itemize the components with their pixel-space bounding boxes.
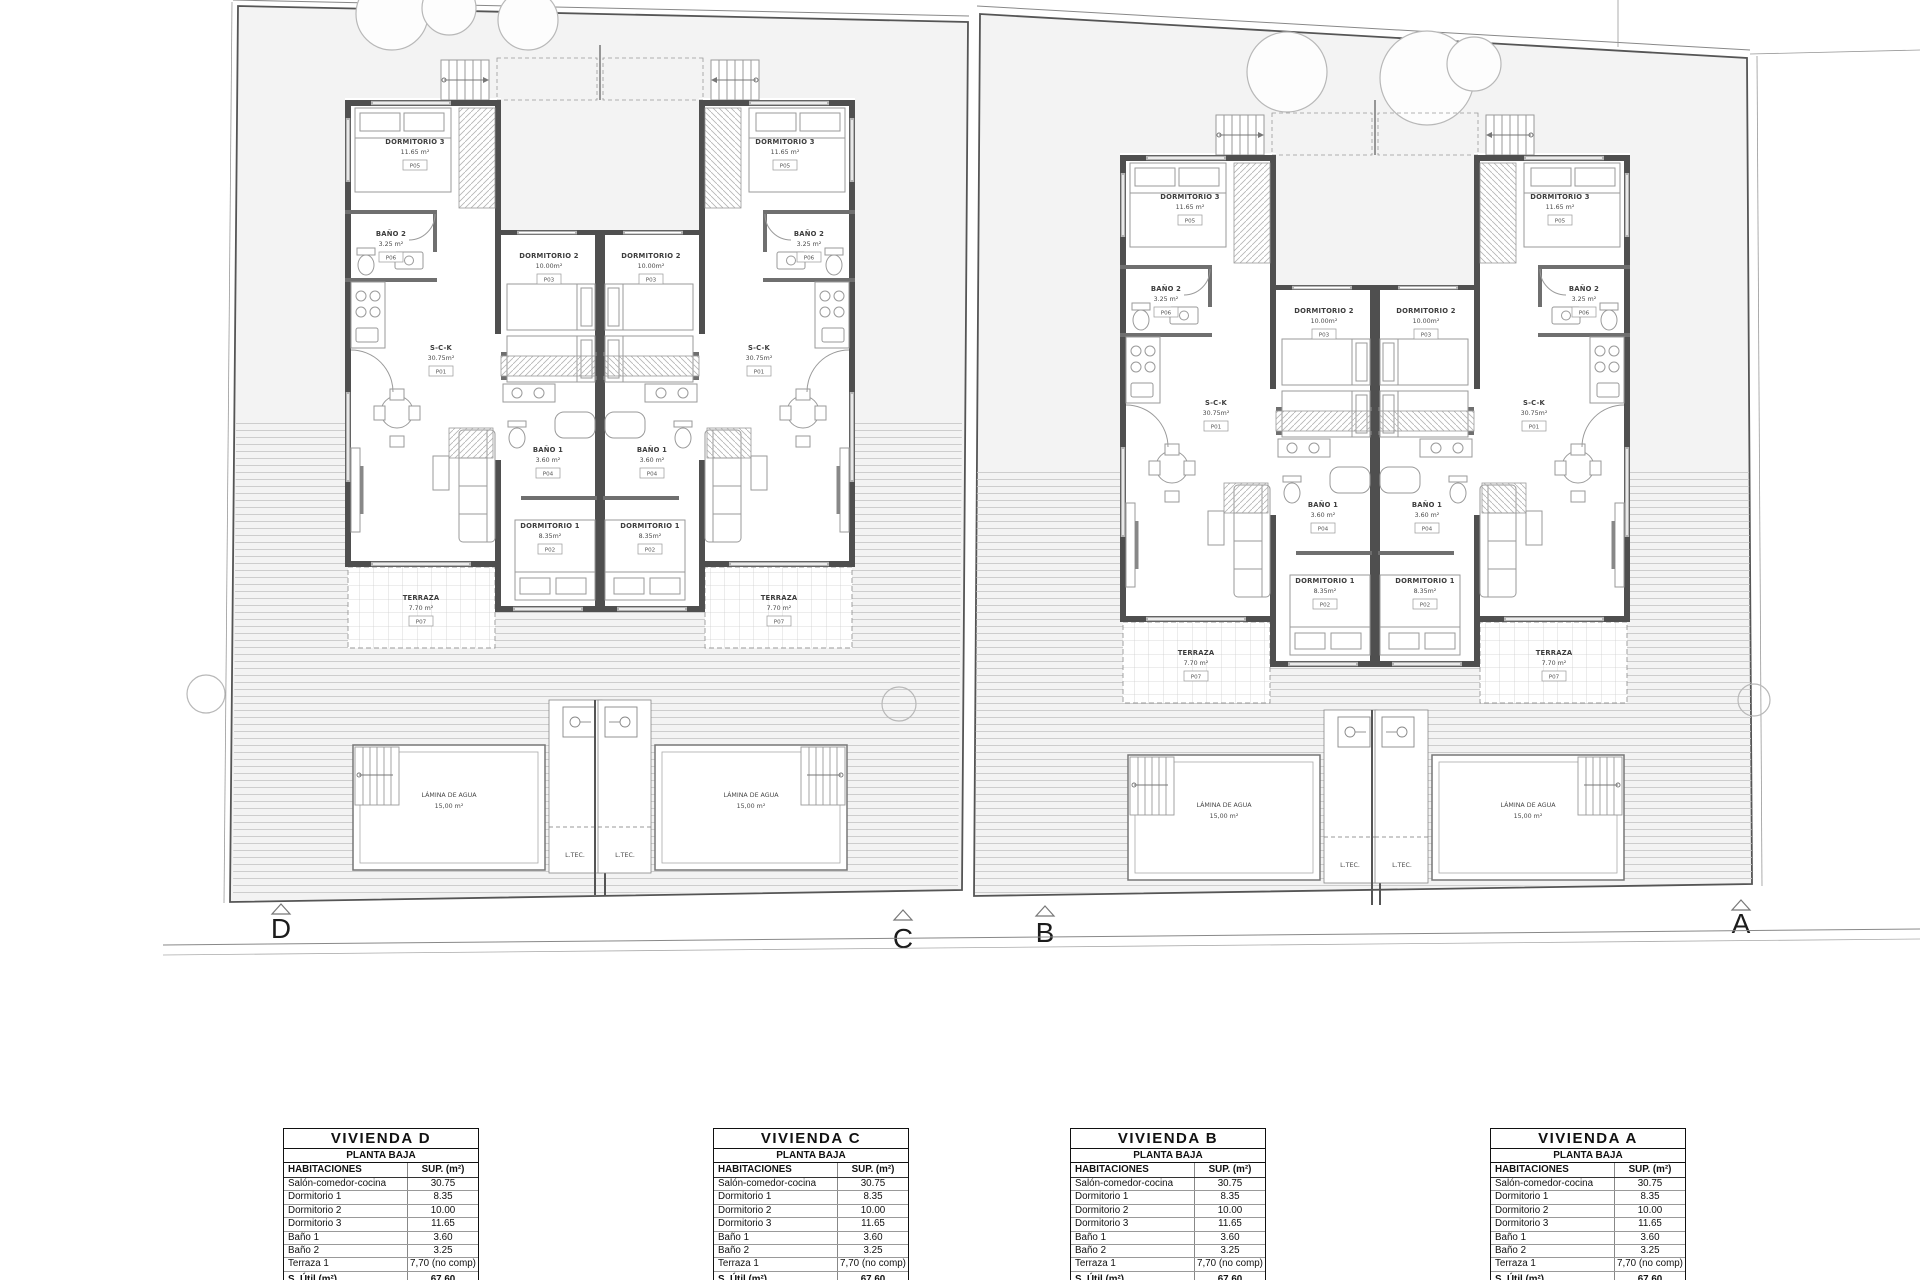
table-subtitle: PLANTA BAJA [1071, 1149, 1265, 1163]
table-title: VIVIENDA D [284, 1129, 478, 1149]
col-header-rooms: HABITACIONES [1491, 1163, 1614, 1177]
table-subtitle: PLANTA BAJA [1491, 1149, 1685, 1163]
vivienda-table-d: VIVIENDA D PLANTA BAJA HABITACIONES SUP.… [283, 1128, 479, 1280]
room-label: 7.70 m² [1184, 660, 1209, 667]
room-area-cell: 8.35 [1614, 1191, 1685, 1203]
total-label: S. Útil (m²) [284, 1272, 407, 1280]
room-label: 11.65 m² [401, 149, 430, 156]
table-row: Baño 13.60 [1491, 1232, 1685, 1245]
room-name-cell: Dormitorio 2 [1491, 1205, 1614, 1217]
room-label: P05 [1555, 219, 1566, 225]
table-subtitle: PLANTA BAJA [714, 1149, 908, 1163]
room-name-cell: Salón-comedor-cocina [714, 1178, 837, 1190]
room-label: P02 [545, 548, 556, 554]
room-area-cell: 30.75 [1614, 1178, 1685, 1190]
room-label: LÁMINA DE AGUA [421, 790, 477, 799]
table-row: Salón-comedor-cocina30.75 [1491, 1178, 1685, 1191]
table-row: Dormitorio 311.65 [714, 1218, 908, 1231]
room-label: P02 [645, 548, 656, 554]
room-area-cell: 3.60 [407, 1232, 478, 1244]
table-total-row: S. Útil (m²) 67.60 [284, 1272, 478, 1280]
section-marker-d: D [271, 913, 291, 944]
room-area-cell: 11.65 [1614, 1218, 1685, 1230]
table-row: Dormitorio 311.65 [1071, 1218, 1265, 1231]
room-name-cell: Baño 1 [1491, 1232, 1614, 1244]
room-name-cell: Dormitorio 1 [1071, 1191, 1194, 1203]
tree-icon [1247, 32, 1327, 112]
room-label: L.TEC. [1340, 862, 1360, 869]
table-row: Baño 23.25 [1071, 1245, 1265, 1258]
table-subtitle: PLANTA BAJA [284, 1149, 478, 1163]
total-value: 67.60 [1614, 1272, 1685, 1280]
table-header: HABITACIONES SUP. (m²) [1491, 1163, 1685, 1178]
room-label: P01 [1211, 425, 1222, 431]
room-label: P06 [1161, 311, 1172, 317]
room-label: 15,00 m² [435, 803, 464, 810]
room-label: 3.25 m² [1154, 296, 1179, 303]
room-area-cell: 3.25 [1194, 1245, 1265, 1257]
room-name-cell: Dormitorio 3 [1491, 1218, 1614, 1230]
room-name-cell: Dormitorio 3 [714, 1218, 837, 1230]
room-area-cell: 11.65 [1194, 1218, 1265, 1230]
room-label: LÁMINA DE AGUA [1500, 800, 1556, 809]
room-name-cell: Salón-comedor-cocina [1071, 1178, 1194, 1190]
room-name-cell: Baño 2 [1491, 1245, 1614, 1257]
table-rows: Salón-comedor-cocina30.75Dormitorio 18.3… [1491, 1178, 1685, 1272]
total-value: 67.60 [407, 1272, 478, 1280]
room-area-cell: 10.00 [1614, 1205, 1685, 1217]
room-label: 3.60 m² [1415, 512, 1440, 519]
room-label: BAÑO 2 [794, 229, 824, 238]
room-label: P05 [780, 164, 791, 170]
table-total-row: S. Útil (m²) 67.60 [1071, 1272, 1265, 1280]
room-label: BAÑO 2 [376, 229, 406, 238]
room-label: 3.60 m² [1311, 512, 1336, 519]
room-name-cell: Dormitorio 3 [1071, 1218, 1194, 1230]
table-row: Baño 23.25 [284, 1245, 478, 1258]
room-label: BAÑO 1 [637, 445, 667, 454]
room-label: P03 [1421, 333, 1432, 339]
room-label: 11.65 m² [771, 149, 800, 156]
table-row: Dormitorio 18.35 [284, 1191, 478, 1204]
room-label: P01 [436, 370, 447, 376]
col-header-rooms: HABITACIONES [1071, 1163, 1194, 1177]
room-label: P06 [804, 256, 815, 262]
room-label: P05 [410, 164, 421, 170]
room-name-cell: Baño 2 [284, 1245, 407, 1257]
room-label: P02 [1420, 603, 1431, 609]
room-label: 7.70 m² [409, 605, 434, 612]
col-header-rooms: HABITACIONES [284, 1163, 407, 1177]
room-label: 10.00m² [638, 263, 665, 270]
room-label: 7.70 m² [1542, 660, 1567, 667]
room-name-cell: Dormitorio 3 [284, 1218, 407, 1230]
room-label: DORMITORIO 1 [1295, 577, 1354, 585]
room-area-cell: 10.00 [1194, 1205, 1265, 1217]
room-label: P05 [1185, 219, 1196, 225]
room-label: S-C-K [430, 344, 452, 352]
room-label: 30.75m² [428, 355, 455, 362]
room-label: TERRAZA [761, 594, 798, 602]
room-label: DORMITORIO 2 [1294, 307, 1353, 315]
room-name-cell: Baño 1 [284, 1232, 407, 1244]
room-name-cell: Terraza 1 [1071, 1258, 1194, 1270]
table-title: VIVIENDA A [1491, 1129, 1685, 1149]
room-label: L.TEC. [1392, 862, 1412, 869]
room-area-cell: 30.75 [1194, 1178, 1265, 1190]
room-name-cell: Baño 2 [1071, 1245, 1194, 1257]
table-row: Dormitorio 210.00 [1071, 1205, 1265, 1218]
room-label: P04 [1422, 527, 1433, 533]
total-label: S. Útil (m²) [714, 1272, 837, 1280]
table-row: Terraza 17,70 (no comp) [714, 1258, 908, 1271]
room-name-cell: Terraza 1 [714, 1258, 837, 1270]
room-area-cell: 3.25 [407, 1245, 478, 1257]
room-label: L.TEC. [565, 852, 585, 859]
table-total-row: S. Útil (m²) 67.60 [714, 1272, 908, 1280]
total-label: S. Útil (m²) [1071, 1272, 1194, 1280]
table-row: Dormitorio 311.65 [1491, 1218, 1685, 1231]
room-label: S-C-K [1523, 399, 1545, 407]
room-area-cell: 3.25 [837, 1245, 908, 1257]
table-row: Salón-comedor-cocina30.75 [1071, 1178, 1265, 1191]
vivienda-table-a: VIVIENDA A PLANTA BAJA HABITACIONES SUP.… [1490, 1128, 1686, 1280]
room-label: P04 [543, 472, 554, 478]
table-rows: Salón-comedor-cocina30.75Dormitorio 18.3… [1071, 1178, 1265, 1272]
room-label: 15,00 m² [737, 803, 766, 810]
room-label: 8.35m² [539, 533, 562, 540]
room-label: BAÑO 1 [1308, 500, 1338, 509]
room-label: P01 [754, 370, 765, 376]
room-area-cell: 7,70 (no comp) [1194, 1258, 1265, 1270]
room-label: BAÑO 2 [1569, 284, 1599, 293]
room-area-cell: 10.00 [407, 1205, 478, 1217]
room-label: P04 [1318, 527, 1329, 533]
table-title: VIVIENDA B [1071, 1129, 1265, 1149]
table-rows: Salón-comedor-cocina30.75Dormitorio 18.3… [284, 1178, 478, 1272]
room-label: DORMITORIO 2 [621, 252, 680, 260]
room-name-cell: Salón-comedor-cocina [284, 1178, 407, 1190]
room-label: TERRAZA [403, 594, 440, 602]
vivienda-table-b: VIVIENDA B PLANTA BAJA HABITACIONES SUP.… [1070, 1128, 1266, 1280]
room-label: L.TEC. [615, 852, 635, 859]
total-value: 67.60 [1194, 1272, 1265, 1280]
room-name-cell: Terraza 1 [284, 1258, 407, 1270]
table-total-row: S. Útil (m²) 67.60 [1491, 1272, 1685, 1280]
room-name-cell: Dormitorio 2 [1071, 1205, 1194, 1217]
room-label: BAÑO 1 [533, 445, 563, 454]
room-label: BAÑO 1 [1412, 500, 1442, 509]
table-row: Dormitorio 18.35 [1491, 1191, 1685, 1204]
table-row: Baño 13.60 [714, 1232, 908, 1245]
table-row: Baño 23.25 [1491, 1245, 1685, 1258]
room-name-cell: Salón-comedor-cocina [1491, 1178, 1614, 1190]
room-label: P07 [416, 620, 427, 626]
table-row: Baño 13.60 [284, 1232, 478, 1245]
room-label: 7.70 m² [767, 605, 792, 612]
room-label: 30.75m² [1521, 410, 1548, 417]
section-marker-b: B [1036, 917, 1055, 948]
room-label: 11.65 m² [1546, 204, 1575, 211]
table-row: Terraza 17,70 (no comp) [284, 1258, 478, 1271]
room-label: P03 [1319, 333, 1330, 339]
room-label: P01 [1529, 425, 1540, 431]
col-header-sup: SUP. (m²) [1194, 1163, 1265, 1177]
room-area-cell: 3.60 [837, 1232, 908, 1244]
room-label: 8.35m² [639, 533, 662, 540]
room-label: LÁMINA DE AGUA [723, 790, 779, 799]
room-label: 3.60 m² [640, 457, 665, 464]
room-area-cell: 7,70 (no comp) [1614, 1258, 1685, 1270]
table-rows: Salón-comedor-cocina30.75Dormitorio 18.3… [714, 1178, 908, 1272]
room-label: 30.75m² [746, 355, 773, 362]
table-row: Baño 13.60 [1071, 1232, 1265, 1245]
room-label: P06 [386, 256, 397, 262]
room-label: 15,00 m² [1514, 813, 1543, 820]
room-label: DORMITORIO 2 [519, 252, 578, 260]
table-row: Dormitorio 18.35 [1071, 1191, 1265, 1204]
table-header: HABITACIONES SUP. (m²) [714, 1163, 908, 1178]
room-label: DORMITORIO 1 [1395, 577, 1454, 585]
room-area-cell: 3.25 [1614, 1245, 1685, 1257]
site-plan-canvas: DORMITORIO 3 11.65 m² P05 BAÑO 2 3.25 m²… [0, 0, 1920, 1280]
table-header: HABITACIONES SUP. (m²) [1071, 1163, 1265, 1178]
room-label: P07 [1549, 675, 1560, 681]
room-area-cell: 7,70 (no comp) [837, 1258, 908, 1270]
room-name-cell: Terraza 1 [1491, 1258, 1614, 1270]
table-row: Dormitorio 210.00 [714, 1205, 908, 1218]
room-area-cell: 8.35 [837, 1191, 908, 1203]
room-label: 3.25 m² [797, 241, 822, 248]
col-header-rooms: HABITACIONES [714, 1163, 837, 1177]
room-area-cell: 8.35 [407, 1191, 478, 1203]
room-label: DORMITORIO 3 [1160, 193, 1219, 201]
room-label: P02 [1320, 603, 1331, 609]
room-area-cell: 8.35 [1194, 1191, 1265, 1203]
room-area-cell: 30.75 [407, 1178, 478, 1190]
room-area-cell: 30.75 [837, 1178, 908, 1190]
room-name-cell: Dormitorio 2 [284, 1205, 407, 1217]
tree-icon [1447, 37, 1501, 91]
room-area-cell: 3.60 [1614, 1232, 1685, 1244]
room-label: BAÑO 2 [1151, 284, 1181, 293]
room-label: 15,00 m² [1210, 813, 1239, 820]
room-label: TERRAZA [1536, 649, 1573, 657]
room-name-cell: Dormitorio 1 [1491, 1191, 1614, 1203]
room-name-cell: Baño 2 [714, 1245, 837, 1257]
room-label: DORMITORIO 3 [1530, 193, 1589, 201]
room-label: P07 [774, 620, 785, 626]
table-row: Terraza 17,70 (no comp) [1071, 1258, 1265, 1271]
table-row: Baño 23.25 [714, 1245, 908, 1258]
table-row: Dormitorio 210.00 [284, 1205, 478, 1218]
room-name-cell: Baño 1 [1071, 1232, 1194, 1244]
room-label: DORMITORIO 1 [520, 522, 579, 530]
room-area-cell: 7,70 (no comp) [407, 1258, 478, 1270]
room-name-cell: Dormitorio 1 [284, 1191, 407, 1203]
total-value: 67.60 [837, 1272, 908, 1280]
room-label: 10.00m² [1311, 318, 1338, 325]
col-header-sup: SUP. (m²) [1614, 1163, 1685, 1177]
room-label: 3.25 m² [1572, 296, 1597, 303]
room-name-cell: Baño 1 [714, 1232, 837, 1244]
room-area-cell: 3.60 [1194, 1232, 1265, 1244]
table-row: Terraza 17,70 (no comp) [1491, 1258, 1685, 1271]
room-label: 30.75m² [1203, 410, 1230, 417]
vivienda-table-c: VIVIENDA C PLANTA BAJA HABITACIONES SUP.… [713, 1128, 909, 1280]
room-label: DORMITORIO 2 [1396, 307, 1455, 315]
table-row: Salón-comedor-cocina30.75 [284, 1178, 478, 1191]
room-name-cell: Dormitorio 1 [714, 1191, 837, 1203]
room-label: S-C-K [748, 344, 770, 352]
total-label: S. Útil (m²) [1491, 1272, 1614, 1280]
table-title: VIVIENDA C [714, 1129, 908, 1149]
col-header-sup: SUP. (m²) [837, 1163, 908, 1177]
room-label: 10.00m² [536, 263, 563, 270]
table-row: Dormitorio 210.00 [1491, 1205, 1685, 1218]
room-label: DORMITORIO 3 [755, 138, 814, 146]
room-label: DORMITORIO 1 [620, 522, 679, 530]
table-row: Dormitorio 311.65 [284, 1218, 478, 1231]
room-name-cell: Dormitorio 2 [714, 1205, 837, 1217]
room-area-cell: 10.00 [837, 1205, 908, 1217]
room-label: 3.60 m² [536, 457, 561, 464]
room-area-cell: 11.65 [837, 1218, 908, 1230]
room-label: P04 [647, 472, 658, 478]
room-label: P03 [544, 278, 555, 284]
room-label: LÁMINA DE AGUA [1196, 800, 1252, 809]
table-row: Dormitorio 18.35 [714, 1191, 908, 1204]
table-header: HABITACIONES SUP. (m²) [284, 1163, 478, 1178]
section-marker-a: A [1732, 908, 1751, 939]
room-label: TERRAZA [1178, 649, 1215, 657]
room-label: 8.35m² [1414, 588, 1437, 595]
room-label: DORMITORIO 3 [385, 138, 444, 146]
table-row: Salón-comedor-cocina30.75 [714, 1178, 908, 1191]
col-header-sup: SUP. (m²) [407, 1163, 478, 1177]
room-label: 3.25 m² [379, 241, 404, 248]
room-label: S-C-K [1205, 399, 1227, 407]
room-label: P07 [1191, 675, 1202, 681]
floor-plan-drawing: DORMITORIO 3 11.65 m² P05 BAÑO 2 3.25 m²… [0, 0, 1920, 1280]
room-label: P06 [1579, 311, 1590, 317]
room-label: 11.65 m² [1176, 204, 1205, 211]
room-label: 10.00m² [1413, 318, 1440, 325]
room-label: P03 [646, 278, 657, 284]
room-label: 8.35m² [1314, 588, 1337, 595]
room-area-cell: 11.65 [407, 1218, 478, 1230]
